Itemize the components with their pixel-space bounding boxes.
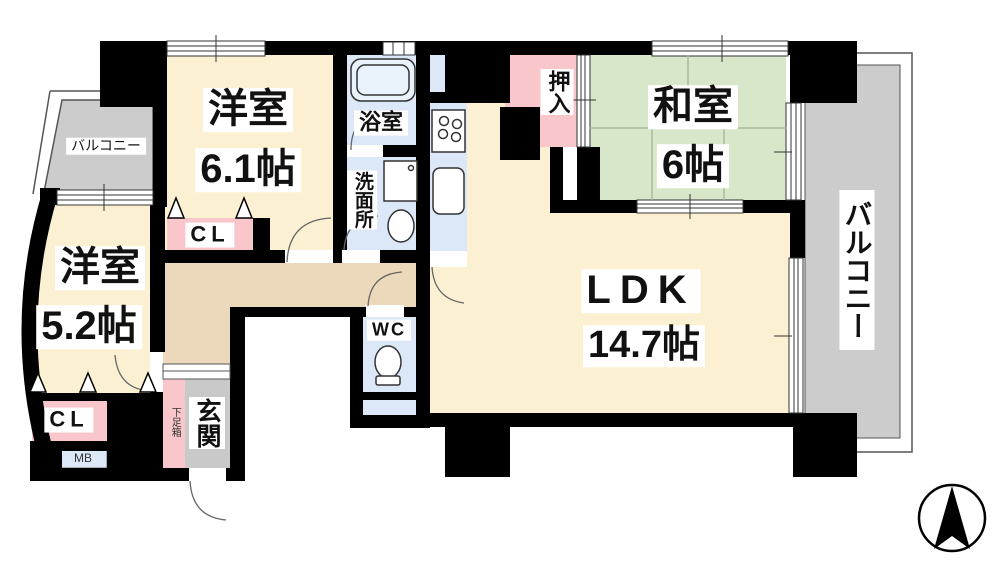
meter-box-label: MB bbox=[74, 452, 92, 464]
western-room1-name-label: 洋室 bbox=[203, 88, 293, 132]
floorplan-page: バルコニー 洋室 6.1帖 浴室 洗面所 押入 和室 6帖 バルコニー 洋室 5… bbox=[0, 0, 1000, 562]
japanese-room-size-label: 6帖 bbox=[657, 144, 729, 188]
toilet-icon bbox=[375, 346, 401, 378]
compass-north-icon bbox=[919, 485, 985, 551]
entrance-label: 玄関 bbox=[189, 397, 225, 449]
closet-top-label: CL bbox=[185, 223, 234, 248]
oshiire-label: 押入 bbox=[541, 69, 574, 115]
stove-icon bbox=[432, 110, 465, 152]
shoe-box-label: 下足箱 bbox=[169, 407, 179, 437]
washing-machine-icon bbox=[384, 161, 417, 201]
bath-label: 浴室 bbox=[354, 111, 408, 136]
washroom-label: 洗面所 bbox=[347, 171, 377, 230]
kitchen-sink-icon bbox=[433, 168, 464, 214]
western-room2-name-label: 洋室 bbox=[55, 246, 145, 290]
washbasin-icon bbox=[388, 210, 414, 242]
western-room1-size-label: 6.1帖 bbox=[195, 148, 301, 192]
japanese-room-name-label: 和室 bbox=[648, 85, 738, 129]
closet-bottom-label: CL bbox=[44, 408, 93, 433]
balcony-right-label: バルコニー bbox=[839, 190, 874, 350]
ldk-name-label: LDK bbox=[581, 269, 700, 313]
western-room2-size-label: 5.2帖 bbox=[36, 305, 142, 349]
ldk-size-label: 14.7帖 bbox=[583, 325, 705, 367]
balcony-left-label: バルコニー bbox=[66, 138, 146, 155]
wc-label: WC bbox=[367, 320, 411, 341]
